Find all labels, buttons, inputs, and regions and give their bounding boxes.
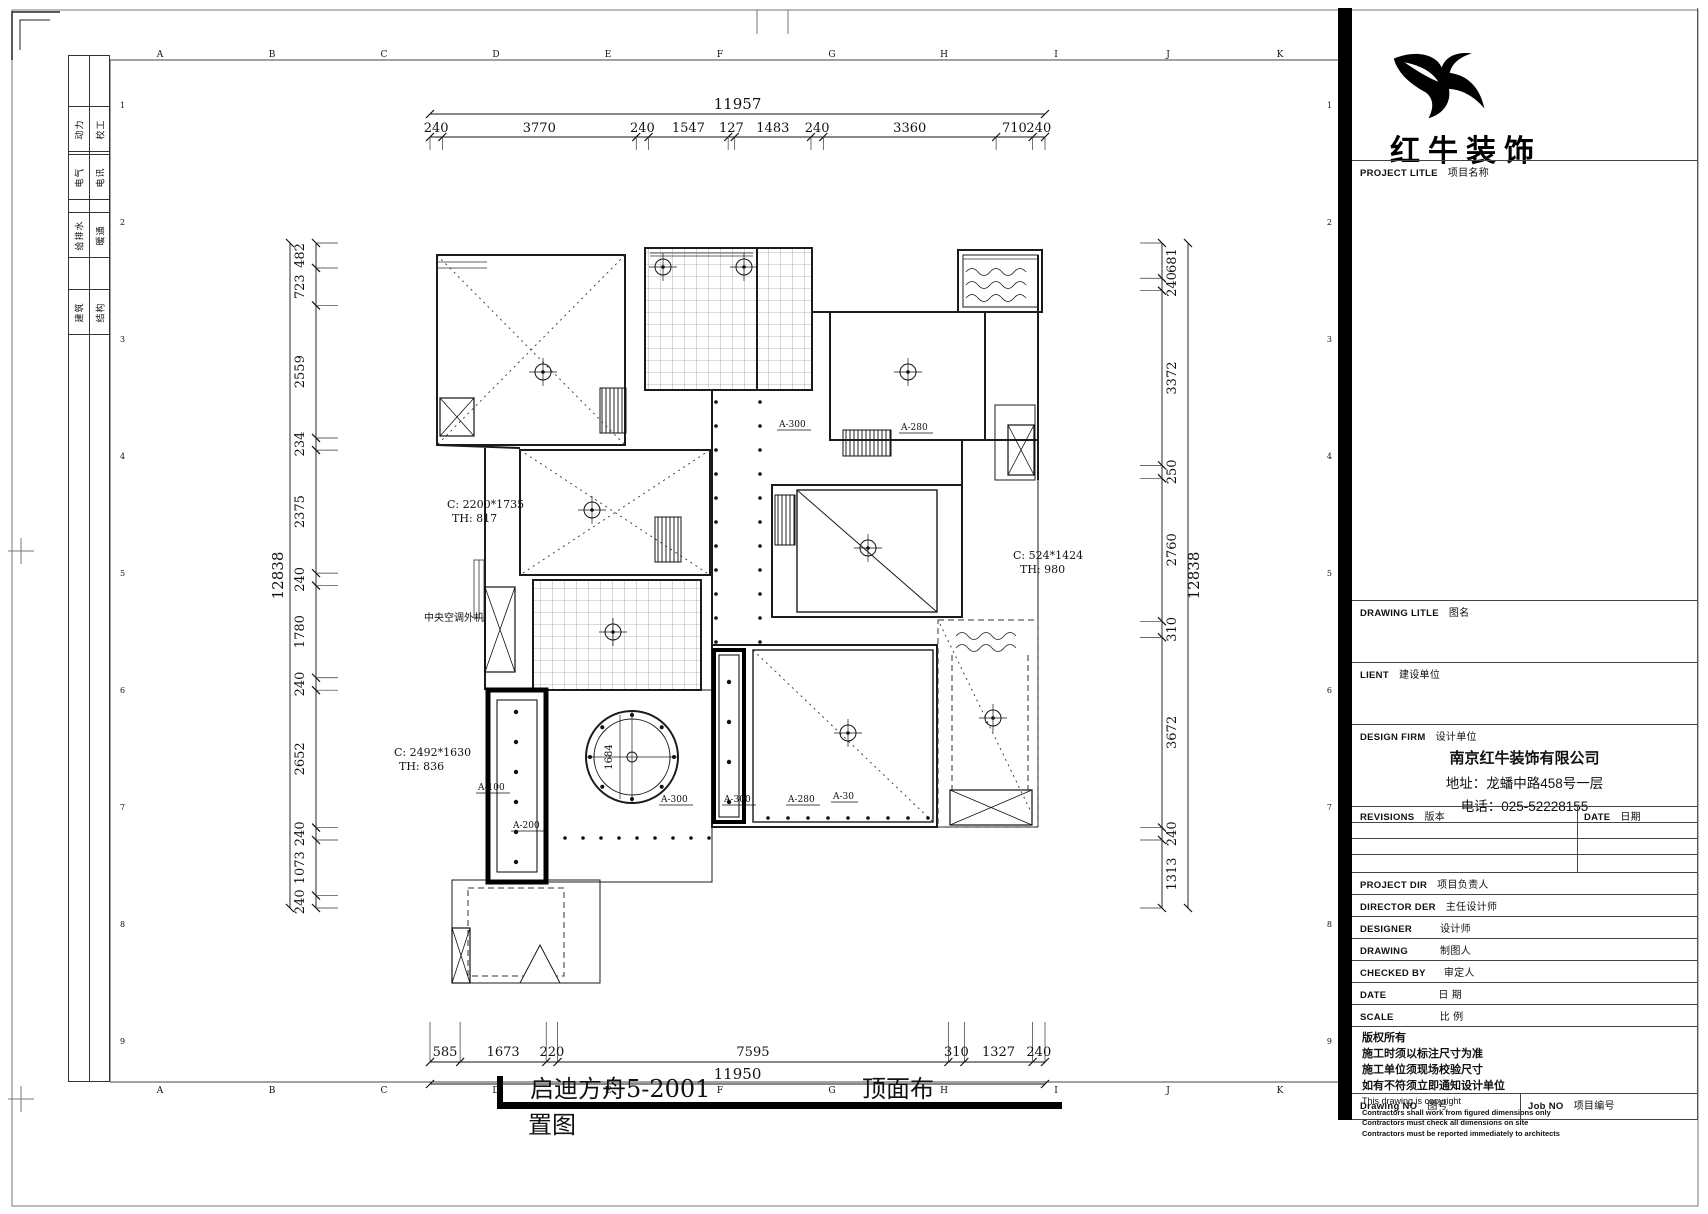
- dim-label: 240: [293, 821, 308, 846]
- ceiling-spot-dot: [714, 640, 718, 644]
- grid-letter-top: I: [1054, 50, 1058, 60]
- dim-label: 1313: [1165, 857, 1180, 890]
- ceiling-spot-dot: [727, 720, 731, 724]
- dim-label: 2760: [1165, 533, 1180, 566]
- dim-label: 681: [1165, 248, 1180, 273]
- grid-number-right: 9: [1327, 1037, 1332, 1046]
- ceiling-light-icon: [541, 370, 545, 374]
- ceiling-spot-dot: [514, 800, 518, 804]
- titleblock-row-numbers: Drawing NO图号 Job NO项目编号: [1352, 1093, 1697, 1120]
- dimension-chain-bottom: 58516732207595310132724011950: [426, 1022, 1051, 1088]
- ceiling-spot-dot: [727, 760, 731, 764]
- grid-letter-bottom: G: [828, 1086, 835, 1096]
- ceiling-spot-dot: [786, 816, 790, 820]
- grid-number-left: 5: [120, 569, 125, 578]
- discipline-label: 结构: [94, 302, 107, 322]
- dim-label: 2375: [293, 495, 308, 528]
- grid-letter-bottom: A: [156, 1086, 164, 1096]
- ceiling-spot-dot: [599, 836, 603, 840]
- grid-number-right: 5: [1327, 569, 1332, 578]
- cove-note-3b: TH: 980: [1020, 563, 1065, 576]
- lamp-code: A-280: [787, 795, 815, 805]
- ceiling-spot-dot: [758, 544, 762, 548]
- ceiling-spot-dot: [714, 592, 718, 596]
- grid-letter-bottom: C: [381, 1086, 388, 1096]
- ceiling-spot-dot: [926, 816, 930, 820]
- ceiling-spot-dot: [563, 836, 567, 840]
- dim-label: 482: [293, 243, 308, 268]
- ceiling-spot-dot: [514, 740, 518, 744]
- grid-letter-bottom: K: [1277, 1086, 1284, 1096]
- titleblock-row-date: DATE日 期: [1352, 982, 1697, 1004]
- titleblock-copyright: 版权所有 施工时须以标注尺寸为准 施工单位须现场校验尺寸 如有不符须立即通知设计…: [1352, 1026, 1697, 1093]
- ceiling-light-icon: [866, 546, 870, 550]
- dim-label: 1780: [293, 615, 308, 648]
- revision-empty-row: [1352, 822, 1697, 838]
- grid-letter-top: H: [940, 50, 948, 60]
- dim-label: 220: [539, 1045, 564, 1060]
- ceiling-spot-dot: [727, 800, 731, 804]
- discipline-label: 电气: [73, 167, 86, 187]
- lamp-code: A-300: [723, 795, 751, 805]
- ceiling-spot-dot: [806, 816, 810, 820]
- ceiling-spot-dot: [707, 836, 711, 840]
- titleblock-divider-bar: [1338, 8, 1352, 1120]
- dim-label: 3672: [1165, 716, 1180, 749]
- ceiling-spot-dot: [630, 713, 634, 717]
- ceiling-spot-dot: [714, 400, 718, 404]
- cove-note-2b: TH: 836: [399, 760, 444, 773]
- grid-letter-top: F: [717, 50, 723, 60]
- grid-letter-bottom: B: [269, 1086, 276, 1096]
- dim-label: 12838: [1185, 552, 1203, 600]
- ceiling-spot-dot: [660, 725, 664, 729]
- dim-label: 1547: [672, 121, 705, 136]
- company-name: 南京红牛装饰有限公司: [1352, 747, 1697, 768]
- grid-letter-top: A: [156, 50, 164, 60]
- lamp-code: A-100: [477, 783, 505, 793]
- grid-letter-bottom: E: [605, 1086, 612, 1096]
- dim-label: 310: [944, 1045, 969, 1060]
- grid-number-right: 7: [1327, 803, 1332, 812]
- cove-note-1b: TH: 817: [452, 512, 497, 525]
- grid-letter-bottom: J: [1165, 1086, 1170, 1096]
- ceiling-spot-dot: [514, 860, 518, 864]
- cove-note-2: C: 2492*1630: [394, 746, 471, 759]
- cove-note-3: C: 524*1424: [1013, 549, 1083, 562]
- drawing-title: 启迪方舟5-2001 顶面布 置图: [497, 1075, 1062, 1139]
- ceiling-spot-dot: [653, 836, 657, 840]
- dim-label: 723: [293, 274, 308, 299]
- grid-letter-bottom: H: [940, 1086, 948, 1096]
- ceiling-light-icon: [661, 265, 665, 269]
- ceiling-light-icon: [590, 508, 594, 512]
- door-swing: [520, 945, 560, 983]
- ceiling-spot-dot: [714, 424, 718, 428]
- revision-empty-row: [1352, 854, 1697, 872]
- titleblock-row-designer: DESIGNER设计师: [1352, 916, 1697, 938]
- ac-vent-icon: [775, 495, 795, 545]
- ceiling-spot-dot: [588, 755, 592, 759]
- ceiling-spot-dot: [600, 785, 604, 789]
- lamp-code: A-30: [832, 792, 854, 802]
- ceiling-spot-dot: [689, 836, 693, 840]
- discipline-row: 建筑 结构: [69, 289, 109, 335]
- dim-label: 3360: [893, 121, 926, 136]
- grid-number-left: 1: [120, 101, 125, 110]
- circle-dimension: 1684: [604, 744, 615, 769]
- ceiling-spot-dot: [714, 616, 718, 620]
- ceiling-spot-dot: [514, 770, 518, 774]
- ceiling-spot-dot: [617, 836, 621, 840]
- ceiling-spot-dot: [714, 520, 718, 524]
- titleblock-row-drawing-title: DRAWING LITLE图名: [1352, 600, 1697, 662]
- dim-label: 3770: [523, 121, 556, 136]
- grid-letter-top: E: [605, 50, 612, 60]
- grid-number-left: 2: [120, 218, 125, 227]
- ceiling-light-icon: [611, 630, 615, 634]
- dimension-chain-top: 119572403770240154712714832403360710240: [424, 95, 1051, 150]
- shaft-x-box: [950, 790, 1032, 825]
- titleblock-row-client: LIENT建设单位: [1352, 662, 1697, 724]
- ceiling-spot-dot: [714, 544, 718, 548]
- lamp-code: A-300: [660, 795, 688, 805]
- dim-label: 240: [1165, 821, 1180, 846]
- lamp-code: A-300: [778, 420, 806, 430]
- drawing-title-text-3: 置图: [528, 1111, 576, 1139]
- grid-letter-top: G: [828, 50, 835, 60]
- titleblock-row-drawing-by: DRAWING制图人: [1352, 938, 1697, 960]
- titleblock-row-project-dir: PROJECT DIR项目负责人: [1352, 872, 1697, 894]
- dim-label: 7595: [736, 1045, 769, 1060]
- dim-label: 240: [293, 672, 308, 697]
- dim-label: 1073: [293, 851, 308, 884]
- discipline-label: 暖通: [94, 225, 107, 245]
- revision-empty-row: [1352, 838, 1697, 854]
- ceiling-spot-dot: [758, 568, 762, 572]
- ceiling-spot-dot: [758, 592, 762, 596]
- dim-label: 2652: [293, 742, 308, 775]
- title-block: 红牛装饰 PROJECT LITLE项目名称 DRAWING LITLE图名 L…: [1352, 8, 1698, 1120]
- ceiling-light-icon: [991, 716, 995, 720]
- grid-number-right: 6: [1327, 686, 1332, 695]
- cove-note-1: C: 2200*1735: [447, 498, 524, 511]
- lamp-code: A-280: [900, 423, 928, 433]
- discipline-label: 动力: [73, 119, 86, 139]
- dimension-chain-right: 681240337225027603103672240131312838: [1140, 239, 1203, 912]
- grid-number-right: 2: [1327, 218, 1332, 227]
- ceiling-spot-dot: [630, 797, 634, 801]
- drawing-title-text-1: 启迪方舟5-2001: [530, 1075, 710, 1103]
- shaft-x-box: [1008, 425, 1034, 475]
- ceiling-spot-dot: [866, 816, 870, 820]
- grid-number-right: 4: [1327, 452, 1332, 461]
- grid-number-left: 6: [120, 686, 125, 695]
- grid-number-left: 8: [120, 920, 125, 929]
- ac-vent-icon: [600, 388, 626, 433]
- ceiling-spot-dot: [635, 836, 639, 840]
- grid-number-left: 3: [120, 335, 125, 344]
- dim-label: 310: [1165, 617, 1180, 642]
- dim-label: 3372: [1165, 361, 1180, 394]
- dim-label: 240: [293, 567, 308, 592]
- discipline-row: 动力 校工: [69, 106, 109, 152]
- ceiling-spot-dot: [758, 520, 762, 524]
- grid-letter-top: K: [1277, 50, 1284, 60]
- round-ceiling-feature: [586, 711, 678, 803]
- discipline-row: 给排水 暖通: [69, 212, 109, 258]
- titleblock-row-checked-by: CHECKED BY审定人: [1352, 960, 1697, 982]
- ceiling-spot-dot: [714, 472, 718, 476]
- dim-label: 240: [805, 121, 830, 136]
- kitchen-tile-ceiling: [534, 581, 700, 689]
- ceiling-light-icon: [742, 265, 746, 269]
- company-address: 地址：龙蟠中路458号一层: [1352, 772, 1697, 792]
- grid-letter-top: D: [492, 50, 499, 60]
- drawing-title-text-2: 顶面布: [862, 1075, 934, 1103]
- ceiling-spot-dot: [660, 785, 664, 789]
- drawing-sheet: C: 2200*1735 TH: 817 C: 2492*1630 TH: 83…: [0, 0, 1708, 1214]
- grid-number-right: 8: [1327, 920, 1332, 929]
- discipline-label: 给排水: [73, 220, 86, 250]
- titleblock-row-scale: SCALE比 例: [1352, 1004, 1697, 1026]
- shaft-x-box: [440, 398, 474, 436]
- ceiling-spot-dot: [600, 725, 604, 729]
- ac-vent-icon: [655, 517, 681, 562]
- dim-label: 11950: [714, 1065, 762, 1083]
- dim-label: 240: [630, 121, 655, 136]
- ac-vent-icon: [843, 430, 891, 456]
- dim-label: 127: [719, 121, 744, 136]
- dimension-chain-left: 4827232559234237524017802402652240107324…: [269, 239, 338, 914]
- grid-number-left: 9: [120, 1037, 125, 1046]
- grid-number-right: 3: [1327, 335, 1332, 344]
- dim-label: 2559: [293, 355, 308, 388]
- dim-label: 240: [1165, 272, 1180, 297]
- grid-letter-bottom: I: [1054, 1086, 1058, 1096]
- titleblock-row-project: PROJECT LITLE项目名称: [1352, 160, 1697, 188]
- titleblock-row-design-firm: DESIGN FIRM设计单位 南京红牛装饰有限公司 地址：龙蟠中路458号一层…: [1352, 724, 1697, 806]
- dim-label: 585: [433, 1045, 458, 1060]
- ceiling-light-icon: [846, 731, 850, 735]
- ceiling-spot-dot: [758, 472, 762, 476]
- ceiling-spot-dot: [758, 400, 762, 404]
- discipline-label: 电讯: [94, 167, 107, 187]
- dim-label: 240: [1026, 121, 1051, 136]
- ceiling-spot-dot: [758, 448, 762, 452]
- discipline-label: 建筑: [73, 302, 86, 322]
- grid-number-right: 1: [1327, 101, 1332, 110]
- shaft-x-box: [452, 928, 470, 983]
- grid-number-left: 7: [120, 803, 125, 812]
- dim-label: 710: [1002, 121, 1027, 136]
- ceiling-spot-dot: [727, 680, 731, 684]
- ceiling-spot-dot: [714, 496, 718, 500]
- ceiling-spot-dot: [758, 640, 762, 644]
- grid-letter-top: J: [1165, 50, 1170, 60]
- grid-letter-top: C: [381, 50, 388, 60]
- ceiling-light-icon: [906, 370, 910, 374]
- ceiling-spot-dot: [714, 448, 718, 452]
- dim-label: 250: [1165, 459, 1180, 484]
- dim-label: 1327: [982, 1045, 1015, 1060]
- discipline-row: 电气 电讯: [69, 154, 109, 200]
- ceiling-spot-dot: [846, 816, 850, 820]
- dim-label: 12838: [269, 552, 287, 600]
- ceiling-spot-dot: [826, 816, 830, 820]
- ceiling-spot-dot: [886, 816, 890, 820]
- corner-mark: [12, 12, 60, 60]
- ceiling-spot-dot: [671, 836, 675, 840]
- ceiling-spot-dot: [672, 755, 676, 759]
- grid-letter-bottom: D: [492, 1086, 499, 1096]
- ceiling-spot-dot: [581, 836, 585, 840]
- ceiling-spot-dot: [514, 830, 518, 834]
- ac-outdoor-unit-label: 中央空调外机: [424, 611, 484, 624]
- dim-label: 240: [293, 889, 308, 914]
- dim-label: 11957: [714, 95, 762, 113]
- grid-letter-top: B: [269, 50, 276, 60]
- dim-label: 234: [293, 432, 308, 457]
- discipline-strip: 动力 校工 电气 电讯 给排水 暖通 建筑 结构: [68, 55, 110, 1082]
- redbull-logo-icon: [1380, 48, 1500, 131]
- ceiling-spot-dot: [714, 568, 718, 572]
- grid-letter-bottom: F: [717, 1086, 723, 1096]
- ceiling-spot-dot: [514, 710, 518, 714]
- discipline-label: 校工: [94, 119, 107, 139]
- dim-label: 1483: [756, 121, 789, 136]
- titleblock-row-revisions: REVISIONS版本 DATE日期: [1352, 806, 1697, 822]
- dim-label: 240: [1026, 1045, 1051, 1060]
- ceiling-spot-dot: [766, 816, 770, 820]
- ceiling-spot-dot: [758, 616, 762, 620]
- dim-label: 240: [424, 121, 449, 136]
- ceiling-spot-dot: [906, 816, 910, 820]
- titleblock-row-director: DIRECTOR DER主任设计师: [1352, 894, 1697, 916]
- shaft-x-box: [485, 587, 515, 672]
- grid-number-left: 4: [120, 452, 125, 461]
- dim-label: 1673: [487, 1045, 520, 1060]
- ceiling-spot-dot: [758, 496, 762, 500]
- ceiling-spot-dot: [758, 424, 762, 428]
- lamp-code: A-200: [512, 821, 540, 831]
